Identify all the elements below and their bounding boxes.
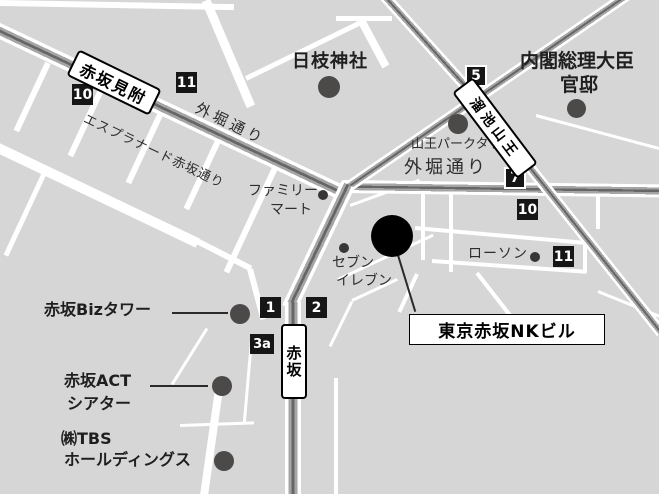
akasaka-biz-tower-dot xyxy=(230,304,250,324)
exit-badge-10-tameike: 10 xyxy=(517,199,538,220)
street xyxy=(4,168,49,256)
landmark-act-line1: 赤坂ACT xyxy=(64,373,131,390)
landmark-kantei-line2: 官邸 xyxy=(520,76,638,96)
kantei-dot xyxy=(567,99,586,118)
landmark-kantei-line1: 内閣総理大臣 xyxy=(520,52,634,72)
act-theater-leader-line xyxy=(150,385,208,387)
landmark-seven-line2: イレブン xyxy=(336,274,392,289)
street xyxy=(14,62,51,133)
access-map: 外堀通り エスプラナード赤坂通り 外堀通り 日枝神社 内閣総理大臣 官邸 山王パ… xyxy=(0,0,659,494)
seven-eleven-dot xyxy=(339,243,349,253)
destination-label: 東京赤坂NKビル xyxy=(409,314,605,345)
street xyxy=(202,0,255,108)
block-outline xyxy=(415,226,587,245)
station-akasaka-mitsuke: 赤坂見附 xyxy=(66,49,161,115)
landmark-lawson: ローソン xyxy=(468,247,528,262)
landmark-tbs-line2: ホールディングス xyxy=(64,452,191,469)
sanno-park-tower-dot xyxy=(448,114,468,134)
exit-badge-11-tameike: 11 xyxy=(553,246,574,267)
family-mart-dot xyxy=(318,190,328,200)
block-outline xyxy=(421,194,425,260)
exit-badge-2-akasaka: 2 xyxy=(306,297,327,318)
exit-badge-11-mitsuke: 11 xyxy=(176,72,197,93)
block-outline xyxy=(536,114,659,150)
block-outline xyxy=(171,328,209,386)
landmark-hie-jinja: 日枝神社 xyxy=(292,53,368,72)
landmark-tbs-line1: ㈱TBS xyxy=(61,431,112,448)
landmark-family-mart-line1: ファミリー xyxy=(248,184,318,199)
station-akasaka: 赤坂 xyxy=(281,324,307,399)
block-outline xyxy=(334,378,338,494)
street xyxy=(0,0,234,10)
destination-marker-circle xyxy=(371,215,413,257)
biz-tower-leader-line xyxy=(172,312,228,314)
tbs-holdings-dot xyxy=(214,451,234,471)
act-theater-dot xyxy=(212,376,232,396)
landmark-akasaka-biz-tower: 赤坂Bizタワー xyxy=(44,302,151,319)
landmark-family-mart-line2: マート xyxy=(270,203,312,218)
block-outline xyxy=(449,194,453,272)
landmark-seven-line1: セブン xyxy=(332,256,374,271)
hie-jinja-dot xyxy=(318,76,340,98)
block-outline xyxy=(329,301,354,347)
sotobori-east-road xyxy=(342,180,659,197)
road-label-sotobori-east: 外堀通り xyxy=(404,159,488,178)
exit-badge-3a-akasaka: 3a xyxy=(250,334,274,354)
lawson-dot xyxy=(530,252,540,262)
block-outline xyxy=(596,193,600,229)
exit-badge-1-akasaka: 1 xyxy=(260,297,281,318)
street xyxy=(199,388,223,494)
landmark-act-line2: シアター xyxy=(67,396,131,413)
